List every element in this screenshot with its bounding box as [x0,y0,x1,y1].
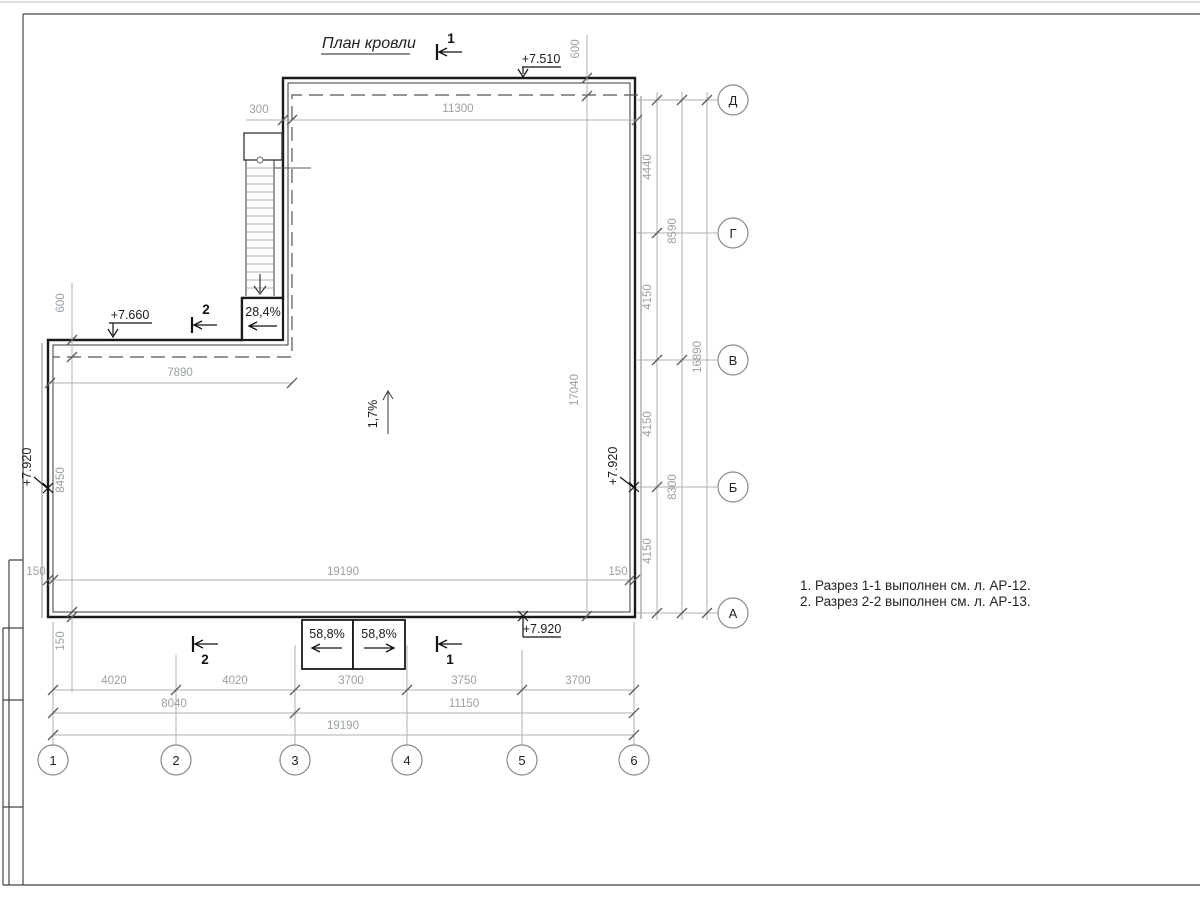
dim-label-17040: 17040 [569,374,581,406]
axis-number-1: 1 [49,753,56,768]
dim-label-3700-b: 3700 [565,675,591,687]
dim-label-150-right: 150 [608,566,627,578]
section-1-top-label: 1 [447,31,455,46]
note-line-1: 1. Разрез 1-1 выполнен см. л. АР-12. [800,578,1031,593]
ladder-down-arrow [254,274,266,294]
section-1-bottom-label: 1 [446,652,454,667]
dim-label-16890: 16890 [692,341,704,373]
dim-label-8040: 8040 [161,698,187,710]
dim-label-600-left: 600 [55,293,67,312]
dim-label-3750: 3750 [451,675,477,687]
dim-label-150-left: 150 [26,566,45,578]
elevation-7920-right: +7.920 [606,447,620,486]
axis-number-3: 3 [291,753,298,768]
dim-label-11300: 11300 [442,103,473,115]
axis-circles-numbers: 1 2 3 4 5 6 [38,745,649,775]
axis-letter-V: В [729,353,738,368]
section-2-top-arrow [193,321,217,329]
elevation-7660: +7.660 [111,308,150,322]
dim-label-4150-a: 4150 [642,284,654,310]
dim-label-8300: 8300 [667,474,679,500]
axis-letter-B: Б [729,480,738,495]
ladder-rungs [246,168,274,288]
building [42,78,641,619]
dim-label-8590: 8590 [667,218,679,244]
section-2-bottom-label: 2 [201,652,209,667]
axis-number-6: 6 [630,753,637,768]
dim-label-19190-inner: 19190 [327,566,359,578]
section-1-top-arrow [438,48,462,56]
dim-label-4150-c: 4150 [642,538,654,564]
fold-marks [3,560,23,885]
elevation-7920-bottom: +7.920 [523,622,562,636]
axis-number-2: 2 [172,753,179,768]
axis-number-4: 4 [403,753,410,768]
elevation-7920-left: +7.920 [20,448,34,487]
axis-letter-A: А [729,606,738,621]
main-slope-label: 1,7% [366,400,380,429]
note-line-2: 2. Разрез 2-2 выполнен см. л. АР-13. [800,594,1031,609]
dim-label-4020-a: 4020 [101,675,127,687]
dim-label-4020-b: 4020 [222,675,248,687]
ramp-left-label: 58,8% [309,627,344,641]
dim-label-4150-b: 4150 [642,411,654,437]
ladder-pivot [257,157,263,163]
dim-label-300: 300 [249,104,268,116]
dim-label-19190-bottom: 19190 [327,720,359,732]
dim-label-600-top: 600 [570,39,582,58]
ladder-top-box [244,133,282,160]
ramp-boxes: 58,8% 58,8% [302,620,405,669]
roof-outer-outline [48,78,635,617]
dim-label-11150: 11150 [449,698,479,710]
drawing-sheet: 28,4% 1,7% 58,8% 58,8% 300 11300 600 170… [0,0,1200,900]
notes-block: 1. Разрез 1-1 выполнен см. л. АР-12. 2. … [800,578,1031,609]
ramp-right-label: 58,8% [361,627,396,641]
roof-plan-drawing: 28,4% 1,7% 58,8% 58,8% 300 11300 600 170… [0,0,1200,900]
elevation-7510-leader [518,67,561,77]
elevation-7660-leader [108,323,152,337]
dim-label-8450: 8450 [55,467,67,493]
axis-number-5: 5 [518,753,525,768]
section-1-bottom-arrow [438,640,462,648]
axis-letter-D: Д [729,93,738,108]
page-title: План кровли [322,35,416,52]
section-2-top-label: 2 [202,302,210,317]
dim-label-150-bottom: 150 [55,631,67,650]
dim-label-4440: 4440 [642,154,654,180]
dim-label-3700-a: 3700 [338,675,364,687]
dim-label-7890: 7890 [167,367,193,379]
drawing-title: План кровли [321,35,416,54]
axis-circles-letters: Д Г В Б А [718,85,748,628]
elevation-7510: +7.510 [522,52,561,66]
ladder-slope-label: 28,4% [245,305,280,319]
section-2-bottom-arrow [194,640,218,648]
axis-letter-G: Г [729,226,736,241]
